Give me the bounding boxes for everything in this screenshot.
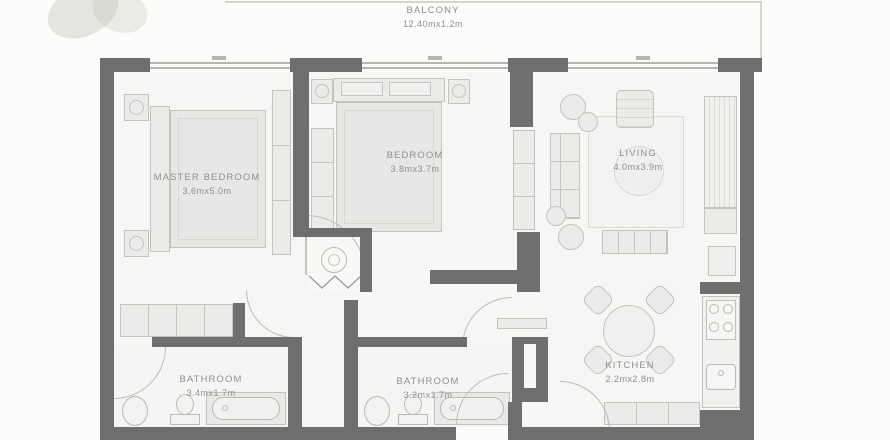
room-dims: 12.40mx1.2m [365,18,501,30]
balcony-label: BALCONY 12.40mx1.2m [365,5,501,30]
faucet-icon [718,370,724,376]
wall-corner-bottom-right [700,410,754,440]
hall-closet-icon [120,304,233,337]
wall-bathroom2-pier [344,300,358,337]
floor-plan: BALCONY 12.40mx1.2m MASTER BEDROOM 3. [0,0,890,440]
lamp-icon [452,84,466,98]
lamp-icon [315,84,329,98]
balcony-edge-line [760,3,762,58]
room-label-living: LIVING 4.0mx3.9m [580,148,696,173]
plant-icon [578,112,598,132]
sofa-back-line [560,134,561,218]
window-1 [150,67,290,69]
window-mullion [212,56,226,60]
room-dims: 3.4mx1.7m [155,387,267,399]
foliage-decor-icon [87,0,154,40]
kitchen-counter-bottom [604,402,700,425]
room-name: BALCONY [365,5,501,18]
room-name: MASTER BEDROOM [140,172,274,185]
burner-icon [709,322,719,332]
room-label-master-bedroom: MASTER BEDROOM 3.6mx5.0m [140,172,274,197]
shaft-niche [524,344,536,388]
window-3 [568,67,718,69]
room-dims: 3.8mx3.7m [357,163,473,175]
window-mullion [428,56,442,60]
window-2 [362,62,508,64]
washing-machine-drum-icon [328,254,340,266]
plant-icon [558,224,584,250]
bifold-door-icon [308,274,362,290]
room-label-kitchen: KITCHEN 2.2mx2.8m [572,360,688,385]
balcony-edge-line [225,1,762,3]
kitchen-sink-icon [706,364,736,390]
room-name: KITCHEN [572,360,688,373]
pillow-icon [341,82,383,96]
room-label-bathroom-1: BATHROOM 3.4mx1.7m [155,374,267,399]
window-mullion [636,56,650,60]
wall-laundry-right [360,237,372,292]
wardrobe-icon [513,130,535,230]
room-name: BEDROOM [357,150,473,163]
lamp-icon [129,236,144,251]
pillow-icon [389,82,431,96]
wall-bottom-right [508,427,704,440]
wall-master-bedroom-divider [293,58,309,232]
room-name: BATHROOM [372,376,484,389]
window-3 [568,62,718,64]
plant-icon [546,206,566,226]
dining-table-icon [603,305,655,357]
bathroom-sink-icon [122,396,148,426]
room-label-bedroom: BEDROOM 3.8mx3.7m [357,150,473,175]
toilet-tank-icon [398,414,428,425]
room-label-bathroom-2: BATHROOM 3.2mx1.7m [372,376,484,401]
room-dims: 4.0mx3.9m [580,161,696,173]
wall-laundry-top [293,228,372,237]
wall-bedroom-bottom [430,270,520,284]
toilet-tank-icon [170,414,200,425]
window-2 [362,67,508,69]
wall-entry-right [508,402,522,427]
tv-console-icon [602,230,668,254]
wardrobe-icon [272,90,291,255]
wall-bathroom1-top [152,337,288,347]
drain-icon [450,405,456,411]
cabinet-shelf-icon [704,208,737,234]
room-name: BATHROOM [155,374,267,387]
wall-right [740,58,754,410]
wall-closet-pier [233,303,245,337]
burner-icon [709,304,719,314]
drain-icon [222,405,228,411]
burner-icon [723,304,733,314]
room-name: LIVING [580,148,696,161]
wall-bathroom1-right [288,337,302,427]
burner-icon [723,322,733,332]
tall-cabinet-icon [704,96,737,208]
wall-bedroom-living-stub-top [510,58,533,127]
side-table-icon [708,246,736,276]
room-dims: 2.2mx2.8m [572,373,688,385]
wall-bedroom-living-stub-bottom [517,232,540,292]
wall-bottom-left [100,427,456,440]
lamp-icon [129,100,144,115]
room-dims: 3.6mx5.0m [140,185,274,197]
wall-living-kitchen-jog [700,282,754,294]
room-dims: 3.2mx1.7m [372,389,484,401]
window-1 [150,62,290,64]
wall-bathroom2-top [344,337,467,347]
wall-left [100,58,114,439]
wall-bathroom2-left [344,337,358,427]
armchair-icon [616,90,654,128]
